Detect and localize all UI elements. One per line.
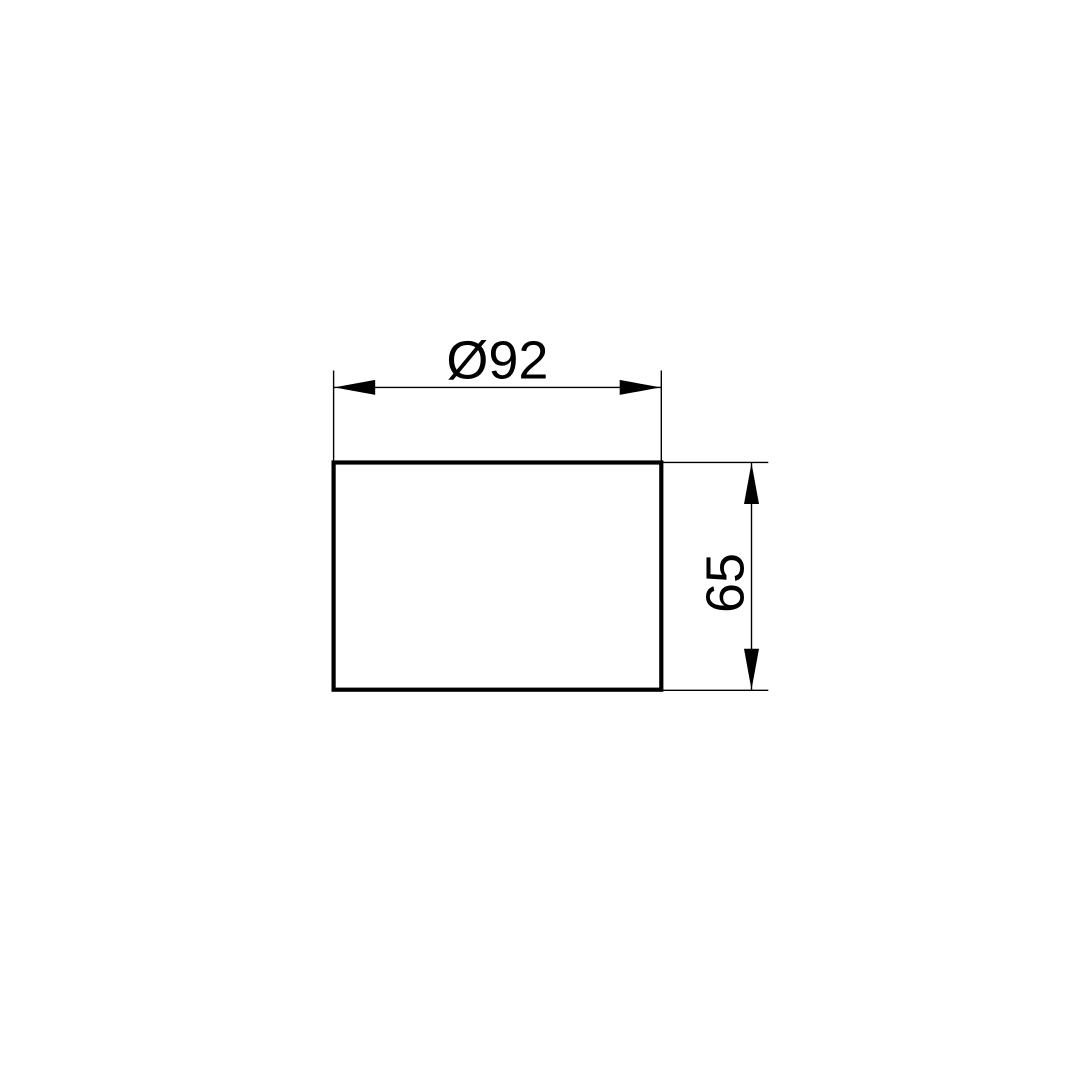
svg-text:Ø92: Ø92 [446,331,548,391]
svg-text:65: 65 [695,553,755,613]
